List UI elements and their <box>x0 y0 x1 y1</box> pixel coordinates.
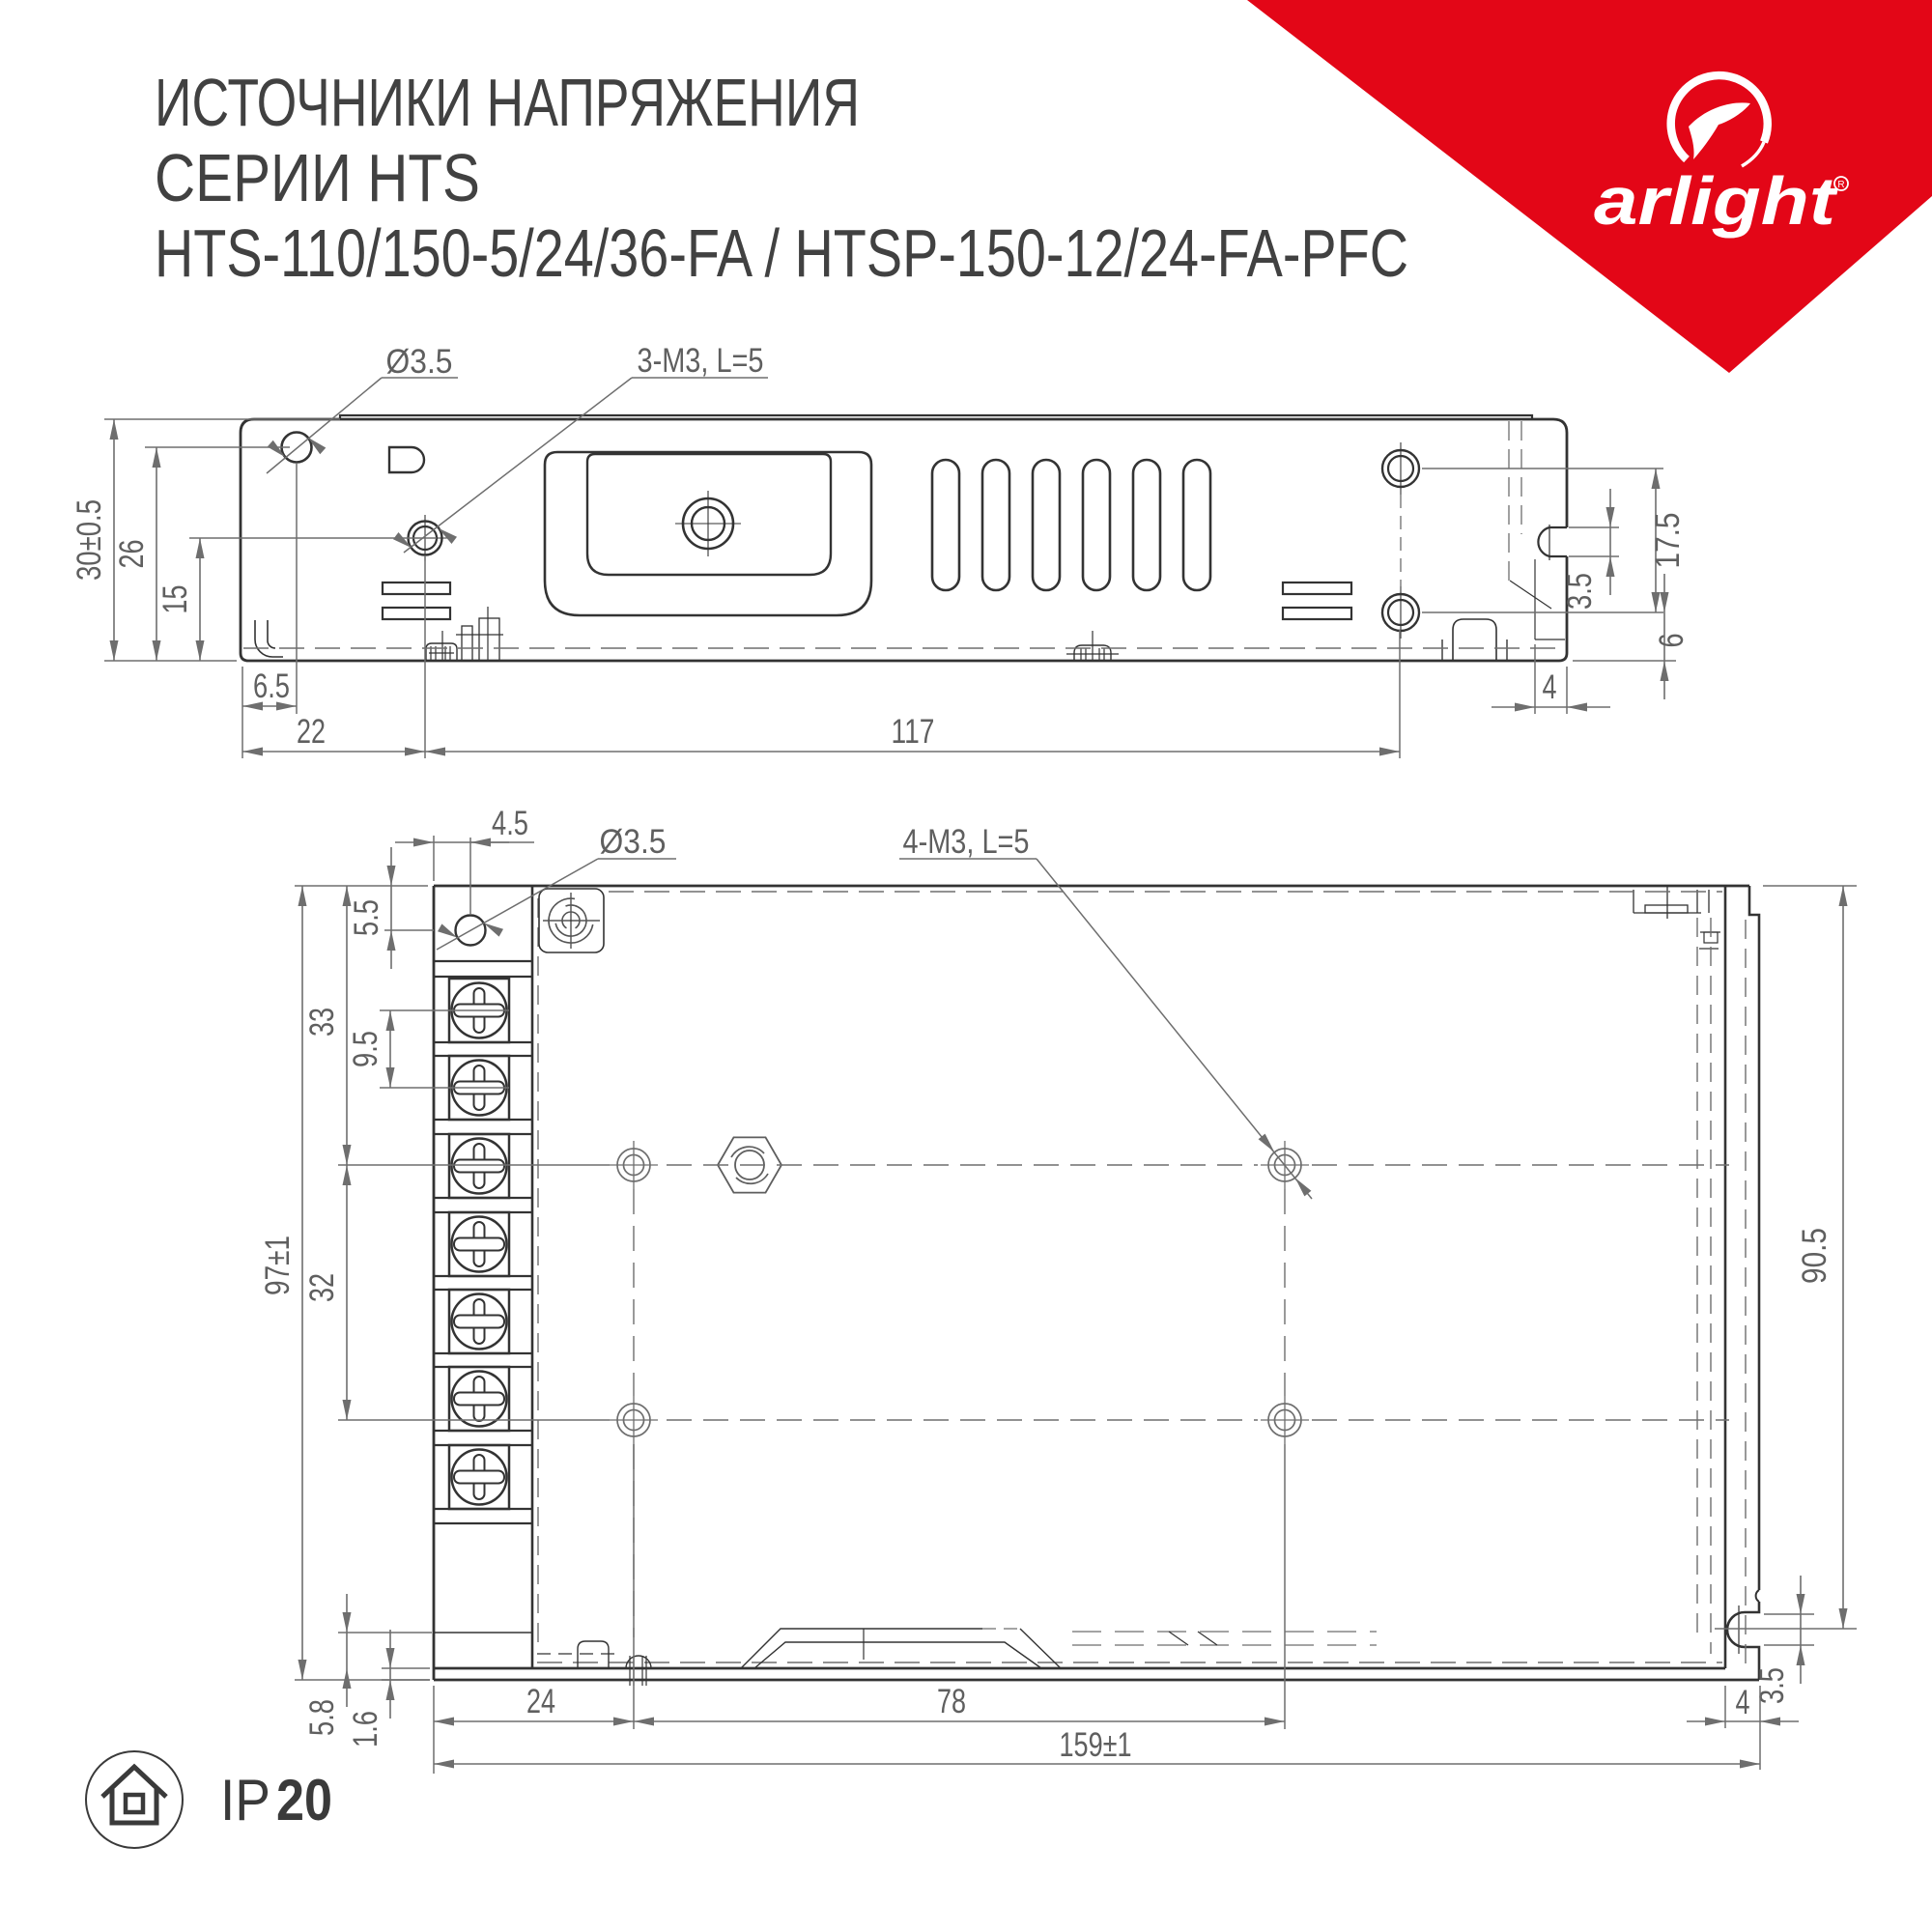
svg-text:3-M3, L=5: 3-M3, L=5 <box>638 342 764 380</box>
svg-text:IP: IP <box>220 1768 270 1833</box>
svg-text:4.5: 4.5 <box>492 805 528 842</box>
svg-text:17.5: 17.5 <box>1649 513 1687 569</box>
svg-text:9.5: 9.5 <box>347 1031 384 1067</box>
svg-text:5.5: 5.5 <box>348 899 385 936</box>
svg-text:Ø3.5: Ø3.5 <box>600 823 667 861</box>
svg-text:Ø3.5: Ø3.5 <box>386 343 453 381</box>
svg-text:15: 15 <box>156 585 194 614</box>
svg-text:arlight: arlight <box>1594 163 1838 239</box>
svg-text:32: 32 <box>303 1273 341 1302</box>
svg-text:6: 6 <box>1653 634 1690 648</box>
svg-text:HTS-110/150-5/24/36-FA / HTSP-: HTS-110/150-5/24/36-FA / HTSP-150-12/24-… <box>155 215 1408 291</box>
svg-text:33: 33 <box>303 1008 341 1037</box>
svg-text:26: 26 <box>113 540 151 569</box>
svg-text:90.5: 90.5 <box>1796 1228 1833 1284</box>
svg-text:24: 24 <box>526 1683 555 1720</box>
svg-text:3.5: 3.5 <box>1753 1667 1791 1704</box>
svg-text:1.6: 1.6 <box>347 1711 384 1747</box>
svg-text:20: 20 <box>276 1768 332 1833</box>
svg-text:97±1: 97±1 <box>259 1236 297 1295</box>
svg-text:22: 22 <box>297 713 326 751</box>
svg-text:30±0.5: 30±0.5 <box>71 499 108 581</box>
svg-text:159±1: 159±1 <box>1060 1726 1132 1764</box>
svg-text:4: 4 <box>1543 668 1557 706</box>
svg-text:R: R <box>1837 180 1844 190</box>
svg-text:78: 78 <box>937 1683 966 1720</box>
svg-text:СЕРИИ HTS: СЕРИИ HTS <box>155 140 480 215</box>
svg-text:4: 4 <box>1736 1684 1750 1721</box>
svg-text:117: 117 <box>892 713 935 751</box>
svg-text:ИСТОЧНИКИ НАПРЯЖЕНИЯ: ИСТОЧНИКИ НАПРЯЖЕНИЯ <box>155 65 860 140</box>
svg-text:6.5: 6.5 <box>253 668 290 705</box>
svg-text:4-M3, L=5: 4-M3, L=5 <box>903 823 1030 861</box>
svg-text:3.5: 3.5 <box>1561 573 1599 610</box>
svg-text:5.8: 5.8 <box>303 1699 341 1736</box>
